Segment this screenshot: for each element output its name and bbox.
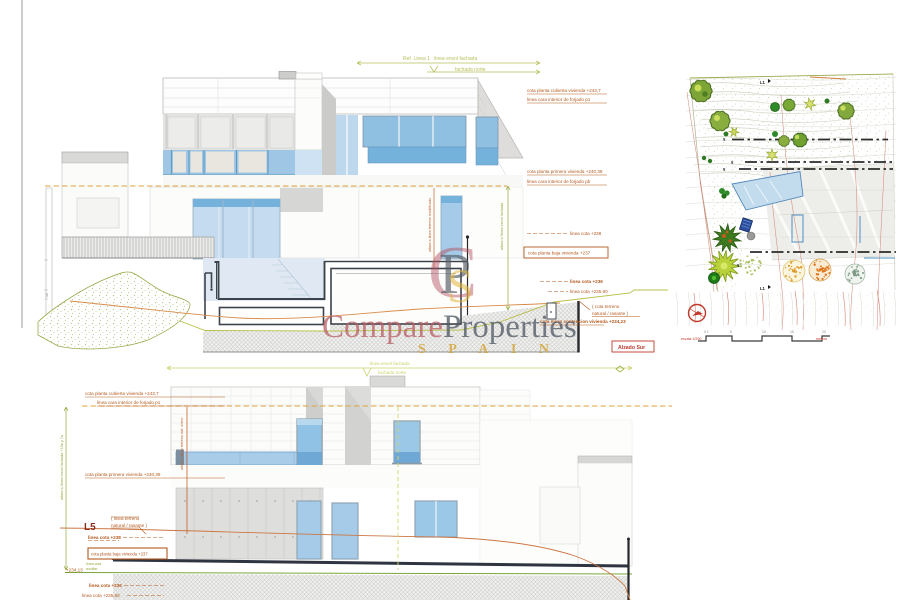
svg-text:CompareProperties: CompareProperties — [322, 309, 577, 345]
svg-text:cota planta baja vivienda +237: cota planta baja vivienda +237 — [528, 251, 591, 256]
svg-text:altura s/ linea envol fachada: altura s/ linea envol fachada — [500, 202, 504, 250]
svg-text:cota planta primera vivienda +: cota planta primera vivienda +240,39 — [527, 169, 603, 174]
svg-text:altura s/ linea envol fachada: altura s/ linea envol fachada +10a y 7a — [60, 434, 64, 500]
svg-text:L1: L1 — [760, 80, 766, 85]
svg-text:L5: L5 — [84, 522, 96, 533]
svg-text:auxiliar: auxiliar — [86, 567, 98, 571]
svg-text:+234,13: +234,13 — [66, 568, 83, 573]
svg-text:SPAIN: SPAIN — [418, 342, 571, 357]
svg-text:Alzado Sur: Alzado Sur — [618, 345, 645, 351]
svg-text:linea cota +238: linea cota +238 — [88, 535, 121, 540]
svg-text:7,10: 7,10 — [45, 293, 49, 300]
svg-text:15: 15 — [790, 330, 794, 334]
svg-text:linea envol fachada: linea envol fachada — [370, 361, 410, 366]
svg-text:linea cota +235,60: linea cota +235,60 — [570, 289, 608, 294]
svg-text:fachada norte: fachada norte — [455, 67, 486, 73]
svg-text:linea cota +236: linea cota +236 — [570, 279, 603, 284]
svg-text:metros: metros — [816, 337, 827, 341]
svg-text:linea cara interior de forjado: linea cara interior de forjado p1 — [97, 400, 161, 405]
svg-text:linea cota +235,60: linea cota +235,60 — [82, 593, 120, 598]
svg-text:linea cota: linea cota — [86, 562, 101, 566]
svg-text:escala 1/200: escala 1/200 — [681, 337, 701, 341]
svg-text:S: S — [447, 260, 474, 313]
svg-text:altura a linea terreno nat. s/: altura a linea terreno nat. s/env — [180, 418, 184, 470]
svg-text:( cota terreno: ( cota terreno — [592, 304, 620, 309]
svg-text:cota planta primera vivienda +: cota planta primera vivienda +240,39 — [85, 472, 161, 477]
svg-text:natural / rasante ): natural / rasante ) — [592, 311, 628, 316]
svg-text:0 1: 0 1 — [704, 330, 709, 334]
svg-text:linea cara interior de forjado: linea cara interior de forjado pb — [527, 179, 591, 184]
svg-text:10: 10 — [762, 330, 766, 334]
svg-text:L1: L1 — [760, 286, 766, 291]
svg-text:5: 5 — [730, 330, 732, 334]
svg-text:cota planta cubierta vivienda: cota planta cubierta vivienda +243,7 — [85, 391, 159, 396]
svg-text:20: 20 — [822, 330, 826, 334]
svg-text:linea cota +238: linea cota +238 — [570, 231, 602, 236]
svg-text:cota planta cubierta vivienda: cota planta cubierta vivienda +243,7 — [527, 88, 601, 93]
svg-text:fachada norte: fachada norte — [378, 370, 407, 375]
svg-text:linea cara interior de forjado: linea cara interior de forjado p1 — [527, 97, 591, 102]
svg-text:natural / rasante ): natural / rasante ) — [111, 523, 147, 528]
svg-text:Ref. Linea 1 : linea envol fac: Ref. Linea 1 : linea envol fachada — [403, 56, 477, 62]
svg-text:cota planta baja vivienda +237: cota planta baja vivienda +237 — [91, 552, 148, 557]
svg-text:linea cota +236: linea cota +236 — [89, 583, 122, 588]
